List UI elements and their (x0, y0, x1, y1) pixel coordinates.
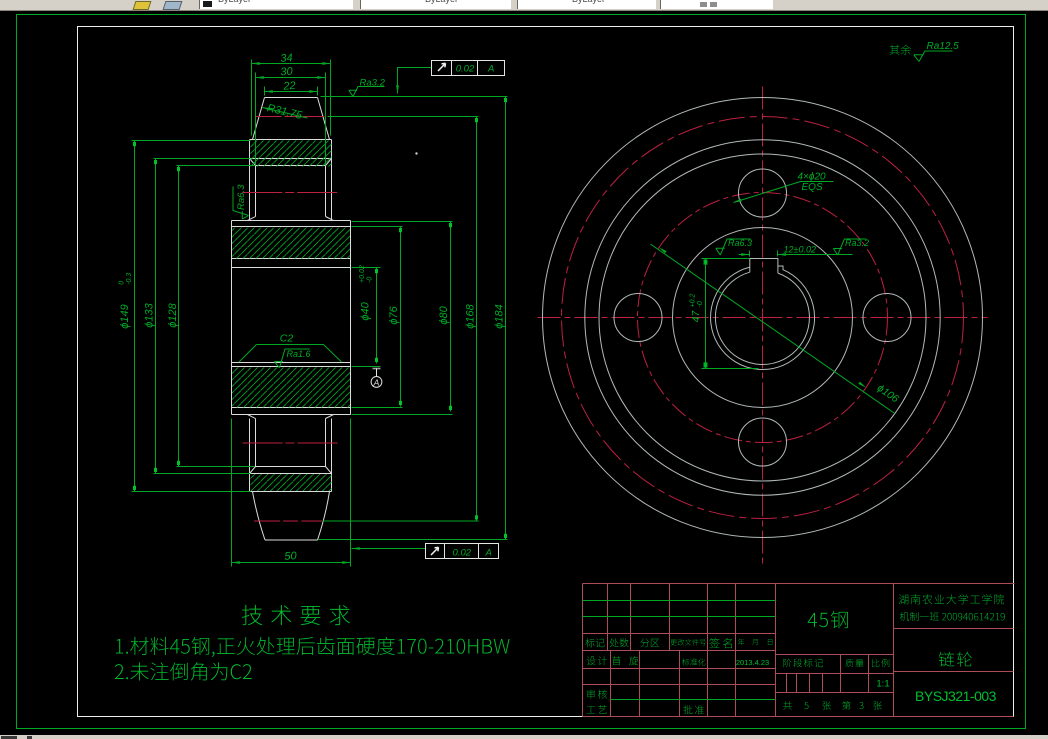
svg-text:47: 47 (690, 310, 702, 323)
svg-text:Ra12.5: Ra12.5 (927, 41, 960, 52)
svg-text:1:1: 1:1 (876, 679, 889, 690)
svg-text:ϕ128: ϕ128 (167, 302, 179, 327)
svg-text:30: 30 (280, 66, 294, 79)
svg-text:-0: -0 (367, 277, 374, 283)
svg-text:ϕ76: ϕ76 (388, 305, 400, 324)
svg-text:+0.2: +0.2 (690, 293, 697, 307)
svg-text:Ra6.3: Ra6.3 (236, 184, 247, 210)
svg-text:ϕ168: ϕ168 (465, 303, 477, 328)
svg-text:ϕ149: ϕ149 (119, 304, 131, 328)
svg-text:2013.4.23: 2013.4.23 (736, 658, 769, 667)
svg-text:12±0.02: 12±0.02 (784, 245, 816, 255)
svg-text:22: 22 (282, 80, 296, 93)
svg-text:Ra6.3: Ra6.3 (728, 238, 752, 248)
svg-text:R31.75: R31.75 (266, 102, 304, 122)
svg-text:ϕ184: ϕ184 (494, 304, 506, 328)
svg-text:BYSJ321-003: BYSJ321-003 (915, 688, 997, 704)
svg-text:-0: -0 (697, 301, 704, 307)
svg-text:EQS: EQS (802, 182, 823, 193)
svg-text:Ra1.6: Ra1.6 (287, 349, 311, 359)
svg-text:0.02: 0.02 (456, 64, 475, 75)
svg-text:Ra3.2: Ra3.2 (360, 77, 386, 88)
svg-text:34: 34 (280, 52, 293, 65)
svg-text:ϕ80: ϕ80 (438, 305, 450, 324)
svg-text:4×ϕ20: 4×ϕ20 (798, 172, 827, 183)
svg-text:A: A (485, 548, 492, 559)
svg-text:-0.3: -0.3 (126, 273, 133, 285)
svg-text:ϕ40: ϕ40 (360, 301, 372, 320)
svg-text:Ra3.2: Ra3.2 (845, 238, 869, 248)
svg-text:C2: C2 (280, 333, 294, 345)
svg-text:+0.02: +0.02 (359, 265, 366, 283)
svg-text:ϕ133: ϕ133 (144, 302, 156, 327)
svg-text:50: 50 (284, 550, 298, 563)
svg-text:0.02: 0.02 (453, 548, 472, 559)
svg-text:A: A (373, 377, 380, 387)
svg-text:A: A (487, 64, 494, 75)
svg-text:0: 0 (119, 281, 126, 285)
